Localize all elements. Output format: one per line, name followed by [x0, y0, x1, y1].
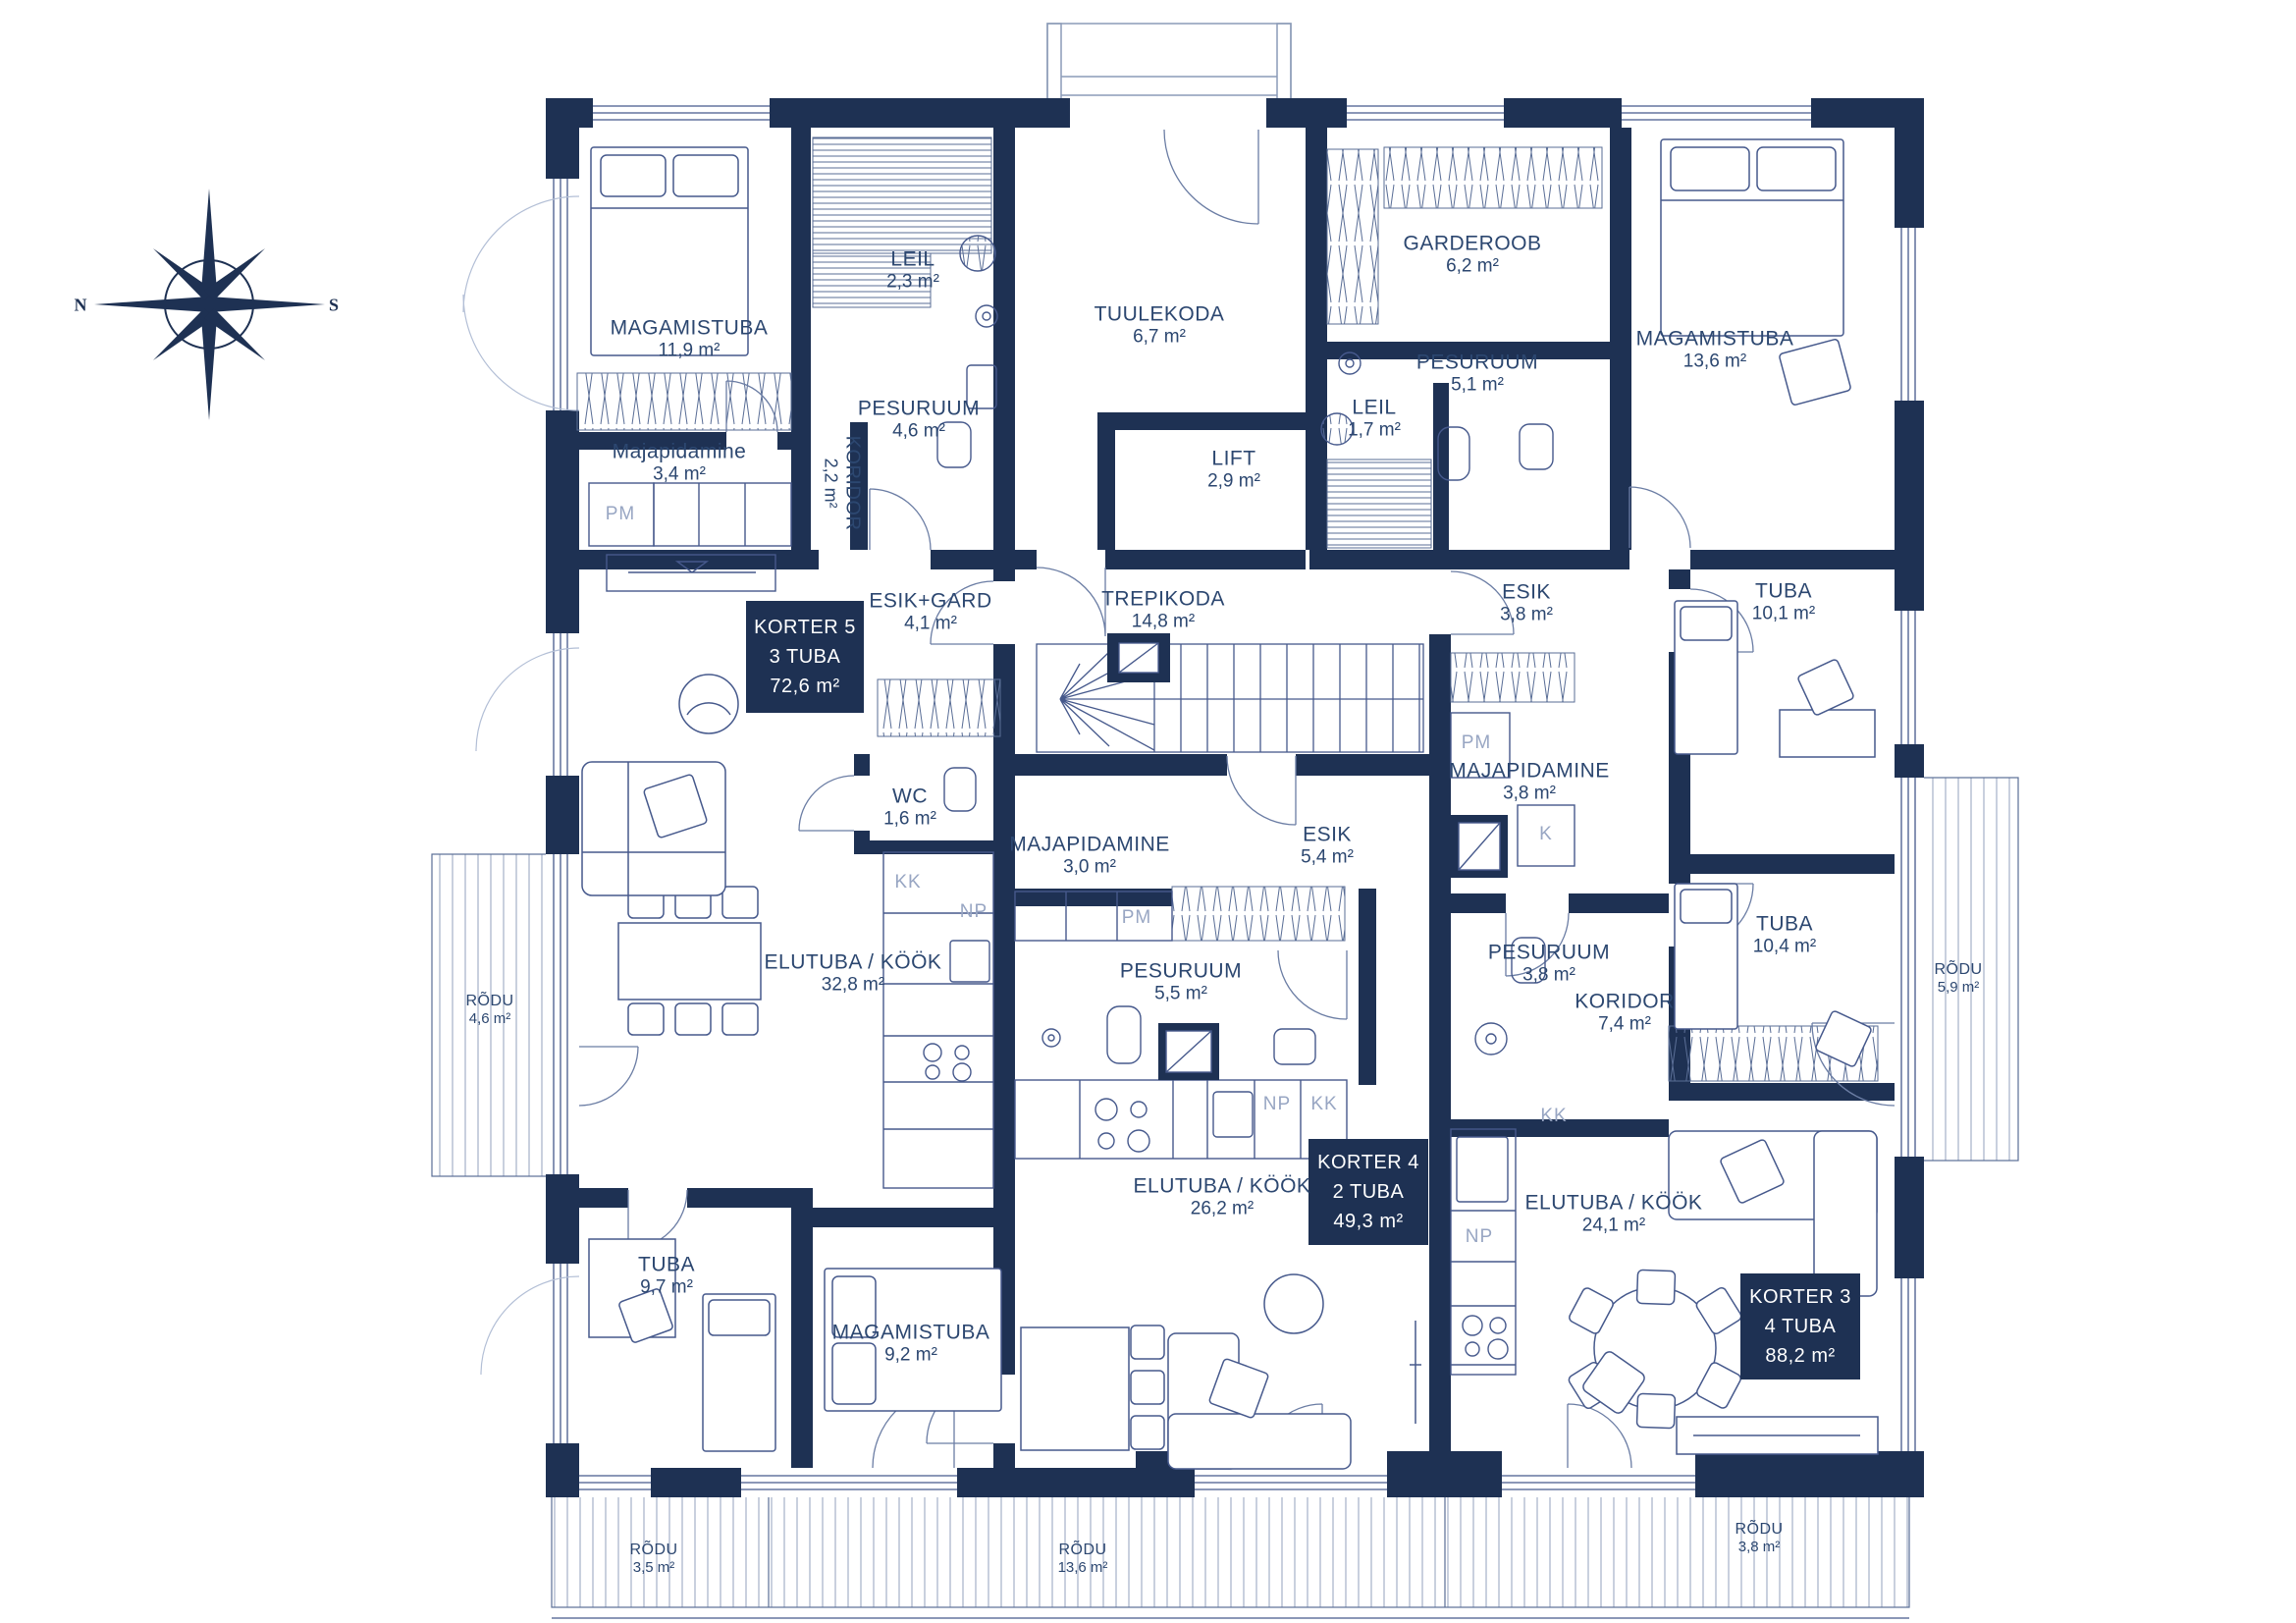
compass-rose-icon: [94, 189, 325, 420]
apartment-area: 49,3 m²: [1333, 1207, 1403, 1236]
apartment-title: KORTER 4: [1317, 1148, 1419, 1177]
floor-plan: KORTER 5 3 TUBA 72,6 m² KORTER 4 2 TUBA …: [0, 0, 2296, 1623]
floor-plan-drawing: [0, 0, 2296, 1623]
apartment-area: 88,2 m²: [1765, 1341, 1835, 1371]
apartment-rooms: 3 TUBA: [770, 642, 841, 672]
apartment-title: KORTER 3: [1749, 1282, 1851, 1312]
apartment-area: 72,6 m²: [770, 672, 839, 701]
apartment-badge-korter4: KORTER 4 2 TUBA 49,3 m²: [1308, 1139, 1428, 1245]
apartment-badge-korter5: KORTER 5 3 TUBA 72,6 m²: [746, 601, 864, 713]
apartment-rooms: 2 TUBA: [1333, 1177, 1405, 1207]
apartment-badge-korter3: KORTER 3 4 TUBA 88,2 m²: [1740, 1273, 1860, 1380]
compass-south-label: S: [329, 296, 339, 316]
apartment-rooms: 4 TUBA: [1765, 1312, 1837, 1341]
compass-north-label: N: [75, 296, 87, 316]
staircase: [1037, 633, 1423, 752]
apartment-title: KORTER 5: [754, 613, 856, 642]
